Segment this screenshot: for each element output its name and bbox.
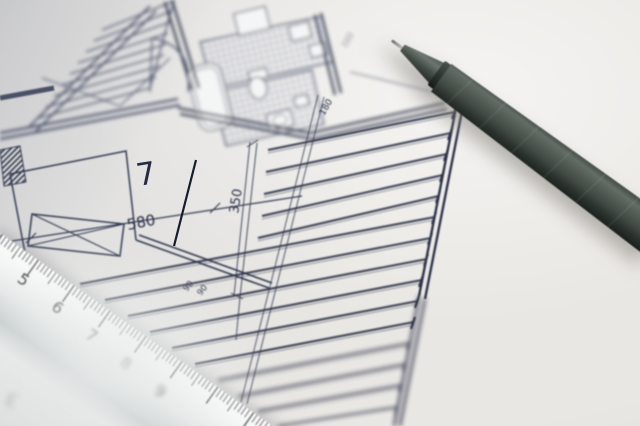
staircase (0, 0, 180, 139)
pencil-line (174, 160, 196, 246)
plan-upper-zone: 160 (0, 0, 450, 146)
defocus-blur-overlay (0, 246, 260, 426)
photo-canvas: 160 (0, 0, 640, 426)
deck-beam-lower (394, 296, 425, 426)
room-number-label: 7 (134, 155, 159, 194)
dim-580-line (12, 196, 302, 243)
plan-sharp-details: 7 (134, 155, 196, 246)
hatched-wall (0, 146, 26, 186)
bathroom (165, 0, 341, 146)
dim-580-label: 580 (125, 211, 157, 234)
deck-beam (419, 103, 463, 299)
left-wall (0, 88, 54, 98)
dim-160-label: 160 (340, 31, 355, 49)
dim-180-label: 180 (318, 97, 335, 117)
